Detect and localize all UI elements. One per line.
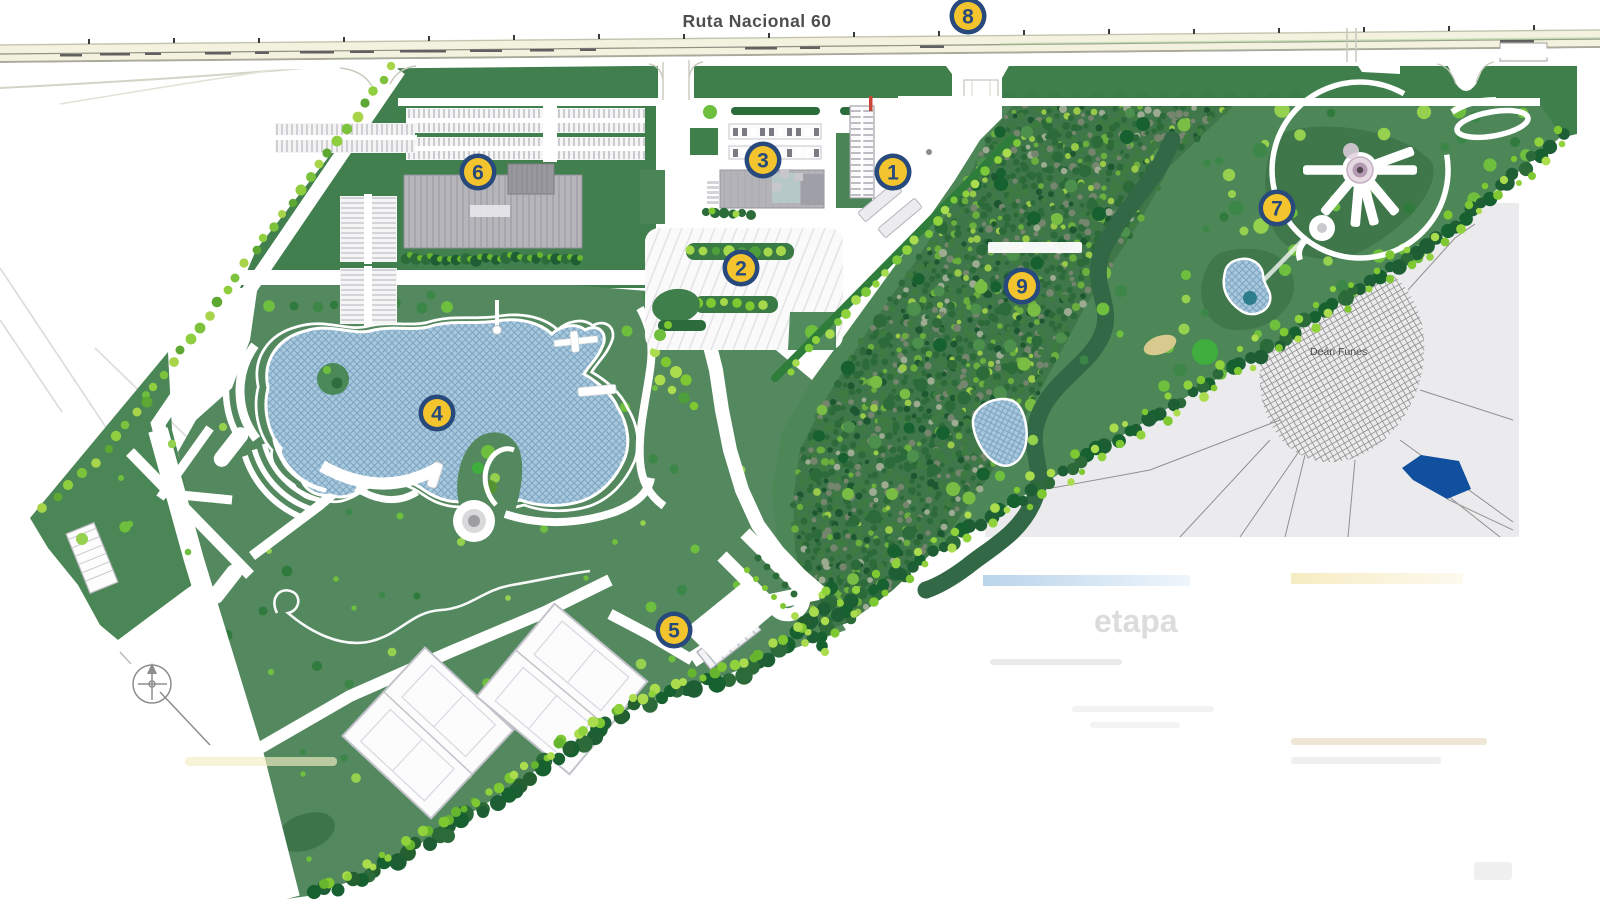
svg-text:Deán Funes: Deán Funes: [1310, 346, 1367, 358]
svg-text:3: 3: [757, 150, 769, 173]
svg-text:etapa: etapa: [1094, 603, 1178, 639]
svg-text:2: 2: [735, 258, 747, 281]
svg-text:1: 1: [887, 162, 899, 185]
svg-text:7: 7: [1271, 198, 1283, 221]
svg-text:Ruta Nacional 60: Ruta Nacional 60: [682, 11, 831, 31]
svg-text:8: 8: [962, 6, 974, 29]
svg-text:9: 9: [1016, 276, 1028, 299]
svg-text:6: 6: [472, 162, 484, 185]
svg-text:5: 5: [668, 620, 680, 643]
svg-text:4: 4: [431, 403, 443, 426]
